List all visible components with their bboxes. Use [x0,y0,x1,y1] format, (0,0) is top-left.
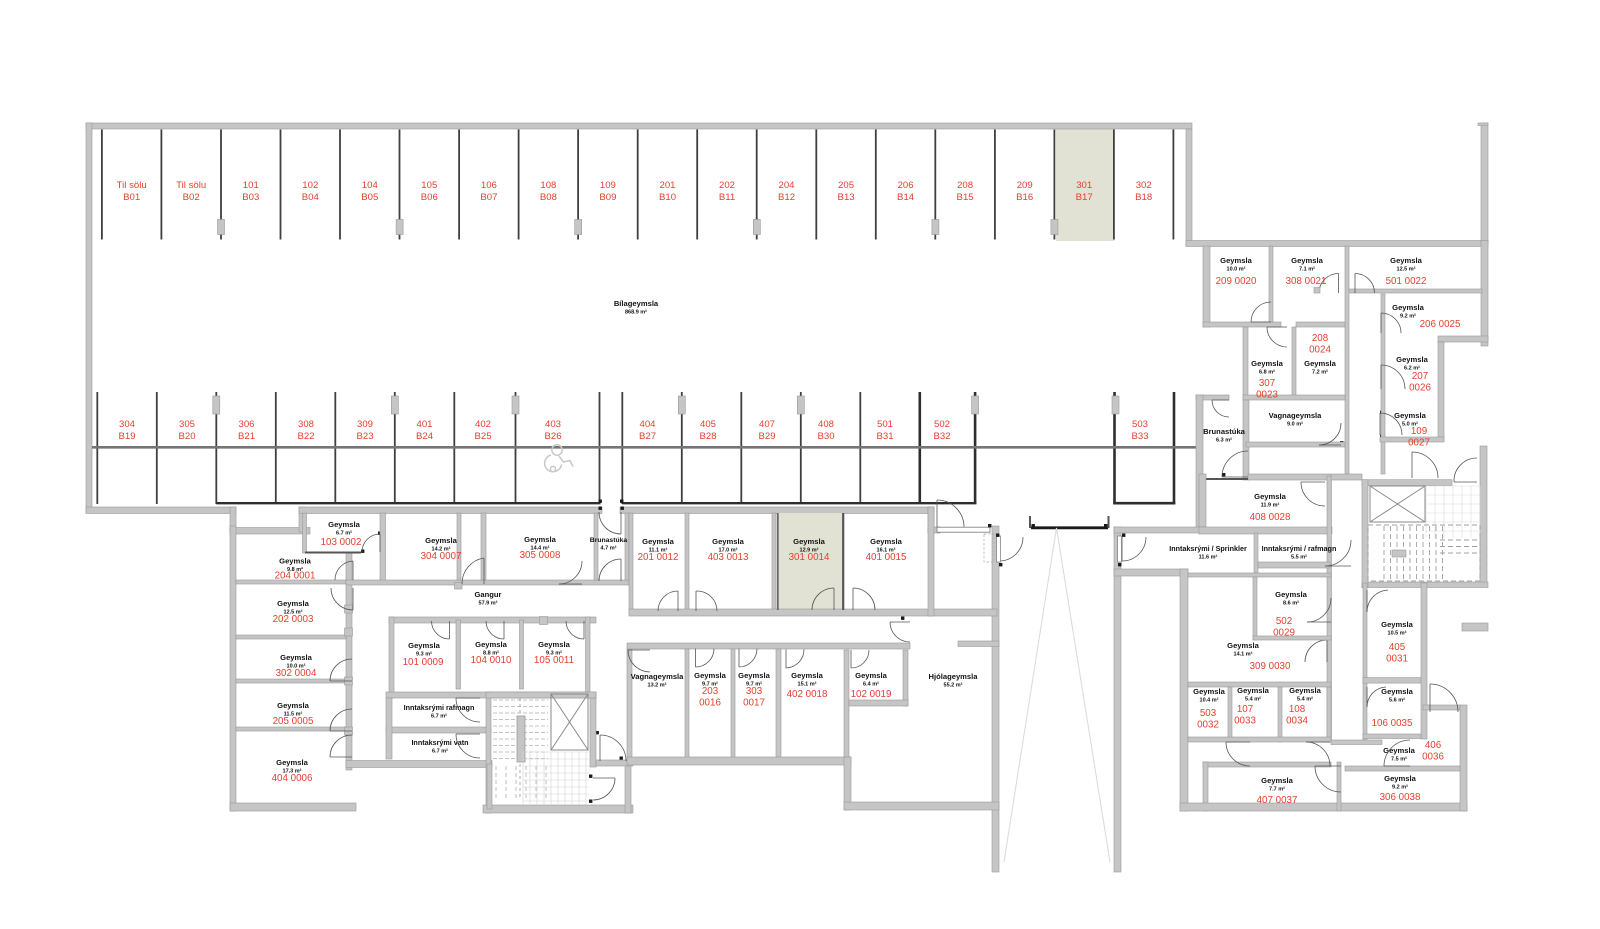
svg-text:306: 306 [238,419,254,430]
svg-text:14.1 m²: 14.1 m² [1234,650,1253,657]
svg-text:Til sölu: Til sölu [176,180,206,191]
svg-text:407 0037: 407 0037 [1257,795,1298,806]
svg-text:0024: 0024 [1309,345,1331,356]
svg-text:202 0003: 202 0003 [273,614,314,625]
svg-text:309: 309 [357,419,373,430]
svg-text:B14: B14 [897,192,915,203]
svg-text:B26: B26 [544,431,561,442]
svg-text:209: 209 [1017,180,1033,191]
svg-text:Geymsla: Geymsla [1304,359,1336,368]
svg-text:B17: B17 [1076,192,1093,203]
svg-text:Geymsla: Geymsla [280,653,312,662]
svg-text:405: 405 [700,419,716,430]
svg-text:201 0012: 201 0012 [638,552,679,563]
svg-text:502: 502 [1276,616,1292,627]
svg-text:9.0 m²: 9.0 m² [1287,420,1303,427]
svg-text:B06: B06 [421,192,438,203]
svg-text:7.1 m²: 7.1 m² [1299,265,1315,272]
svg-text:7.7 m²: 7.7 m² [1269,785,1285,792]
svg-text:105 0011: 105 0011 [534,655,574,666]
svg-text:15.1 m²: 15.1 m² [798,680,817,687]
svg-text:B03: B03 [242,192,259,203]
svg-text:6.8 m²: 6.8 m² [1259,368,1275,375]
svg-text:B16: B16 [1016,192,1033,203]
svg-text:Geymsla: Geymsla [277,599,309,608]
svg-text:B24: B24 [416,431,434,442]
svg-text:Brunastúka: Brunastúka [590,537,628,544]
svg-text:Geymsla: Geymsla [1381,620,1413,629]
svg-text:404 0006: 404 0006 [272,773,313,784]
svg-text:302: 302 [1136,180,1152,191]
svg-text:402 0018: 402 0018 [787,689,828,700]
svg-text:0034: 0034 [1286,716,1308,727]
svg-text:304 0007: 304 0007 [421,551,462,562]
svg-text:Geymsla: Geymsla [279,557,311,566]
svg-text:6.7 m²: 6.7 m² [431,712,447,719]
svg-text:13.2 m²: 13.2 m² [648,681,667,688]
svg-text:Geymsla: Geymsla [1227,641,1259,650]
svg-text:109: 109 [600,180,616,191]
svg-text:B13: B13 [838,192,855,203]
svg-text:305: 305 [179,419,195,430]
svg-text:Geymsla: Geymsla [1261,776,1293,785]
svg-text:Geymsla: Geymsla [1381,687,1413,696]
svg-text:5.5 m²: 5.5 m² [1291,553,1307,560]
svg-text:6.3 m²: 6.3 m² [1216,436,1232,443]
svg-text:Geymsla: Geymsla [1251,359,1283,368]
svg-text:108: 108 [540,180,556,191]
svg-text:B21: B21 [238,431,255,442]
svg-text:B11: B11 [719,192,735,203]
svg-text:B10: B10 [659,192,676,203]
svg-text:Geymsla: Geymsla [642,537,674,546]
svg-text:108: 108 [1289,704,1306,715]
svg-text:5.4 m²: 5.4 m² [1297,695,1313,702]
svg-text:0023: 0023 [1256,390,1278,401]
svg-text:Geymsla: Geymsla [1254,492,1286,501]
svg-text:B20: B20 [178,431,195,442]
svg-text:6.7 m²: 6.7 m² [432,747,448,754]
svg-text:B01: B01 [123,192,140,203]
svg-text:204: 204 [778,180,795,191]
svg-text:Geymsla: Geymsla [712,537,744,546]
svg-text:101 0009: 101 0009 [403,657,444,668]
svg-text:Geymsla: Geymsla [694,671,726,680]
svg-text:306 0038: 306 0038 [1380,792,1421,803]
svg-text:208: 208 [957,180,973,191]
svg-text:Hjólageymsla: Hjólageymsla [929,672,979,681]
svg-text:Geymsla: Geymsla [1193,687,1225,696]
svg-text:Geymsla: Geymsla [1383,746,1415,755]
svg-text:201: 201 [659,180,675,191]
svg-text:10.5 m²: 10.5 m² [1388,629,1407,636]
svg-text:0016: 0016 [699,698,721,709]
svg-text:B33: B33 [1131,431,1148,442]
svg-text:B31: B31 [876,431,893,442]
svg-text:Gangur: Gangur [474,590,501,599]
svg-text:Vagnageymsla: Vagnageymsla [631,672,685,681]
svg-text:7.2 m²: 7.2 m² [1312,368,1328,375]
svg-text:101: 101 [243,180,259,191]
svg-text:5.4 m²: 5.4 m² [1245,695,1261,702]
svg-text:Inntaksrými / rafmagn: Inntaksrými / rafmagn [1262,544,1337,553]
svg-text:109: 109 [1411,426,1427,437]
svg-text:406: 406 [1425,740,1442,751]
svg-text:0036: 0036 [1422,752,1444,763]
svg-text:Geymsla: Geymsla [1289,686,1321,695]
svg-text:Geymsla: Geymsla [276,758,308,767]
svg-text:104: 104 [362,180,379,191]
svg-text:Brunastúka: Brunastúka [1203,427,1246,436]
svg-text:Geymsla: Geymsla [791,671,823,680]
svg-text:103 0002: 103 0002 [321,537,362,548]
svg-text:404: 404 [639,419,656,430]
svg-text:Geymsla: Geymsla [1392,303,1424,312]
svg-text:10.0 m²: 10.0 m² [1227,265,1246,272]
svg-text:205 0005: 205 0005 [273,716,314,727]
svg-text:104 0010: 104 0010 [471,655,512,666]
svg-text:12.5 m²: 12.5 m² [1397,265,1416,272]
svg-text:407: 407 [759,419,775,430]
svg-text:405: 405 [1389,642,1406,653]
svg-text:Geymsla: Geymsla [524,535,556,544]
svg-text:206 0025: 206 0025 [1420,319,1461,330]
svg-text:B05: B05 [361,192,378,203]
svg-text:Geymsla: Geymsla [475,640,507,649]
svg-text:Inntaksrými / Sprinkler: Inntaksrými / Sprinkler [1169,544,1247,553]
svg-text:0032: 0032 [1197,720,1219,731]
svg-text:B15: B15 [957,192,974,203]
svg-text:Geymsla: Geymsla [1237,686,1269,695]
svg-text:102 0019: 102 0019 [851,689,892,700]
svg-text:B29: B29 [758,431,775,442]
svg-text:107: 107 [1237,704,1253,715]
svg-text:7.5 m²: 7.5 m² [1391,755,1407,762]
svg-text:203: 203 [702,686,719,697]
svg-text:11.9 m²: 11.9 m² [1261,501,1280,508]
svg-text:0027: 0027 [1408,438,1430,449]
svg-text:Inntaksrými rafmagn: Inntaksrými rafmagn [404,703,475,712]
svg-text:106: 106 [481,180,497,191]
svg-text:Geymsla: Geymsla [408,641,440,650]
svg-text:B02: B02 [183,192,200,203]
svg-text:Geymsla: Geymsla [538,640,570,649]
svg-text:Geymsla: Geymsla [1275,590,1307,599]
svg-text:408: 408 [818,419,834,430]
svg-text:102: 102 [302,180,318,191]
svg-text:B27: B27 [639,431,656,442]
svg-text:303: 303 [746,686,763,697]
svg-text:B23: B23 [356,431,373,442]
svg-text:204 0001: 204 0001 [275,571,316,582]
svg-text:208: 208 [1312,333,1329,344]
svg-text:5.6 m²: 5.6 m² [1389,696,1405,703]
svg-text:B09: B09 [599,192,616,203]
svg-text:Geymsla: Geymsla [793,537,825,546]
svg-text:401 0015: 401 0015 [866,552,907,563]
svg-text:209 0020: 209 0020 [1216,276,1257,287]
svg-text:8.6 m²: 8.6 m² [1283,599,1299,606]
svg-text:11.6 m²: 11.6 m² [1199,553,1218,560]
svg-text:B12: B12 [778,192,795,203]
svg-text:Geymsla: Geymsla [277,701,309,710]
svg-text:Bílageymsla: Bílageymsla [614,299,659,308]
svg-text:Geymsla: Geymsla [1390,256,1422,265]
svg-text:307: 307 [1259,378,1275,389]
svg-text:403: 403 [545,419,561,430]
svg-text:B28: B28 [699,431,716,442]
svg-text:408 0028: 408 0028 [1250,512,1291,523]
svg-text:Vagnageymsla: Vagnageymsla [1269,411,1323,420]
svg-text:Geymsla: Geymsla [425,536,457,545]
svg-text:57.9 m²: 57.9 m² [479,599,498,606]
svg-text:868.9 m²: 868.9 m² [625,308,647,315]
svg-text:402: 402 [475,419,491,430]
svg-text:Geymsla: Geymsla [328,520,360,529]
svg-text:Geymsla: Geymsla [1220,256,1252,265]
svg-text:501: 501 [877,419,893,430]
svg-text:503: 503 [1132,419,1148,430]
svg-text:501 0022: 501 0022 [1386,276,1427,287]
svg-text:Til sölu: Til sölu [117,180,147,191]
svg-text:Geymsla: Geymsla [870,537,902,546]
svg-text:Geymsla: Geymsla [1396,355,1428,364]
svg-text:Geymsla: Geymsla [855,671,887,680]
svg-text:9.2 m²: 9.2 m² [1400,312,1416,319]
svg-text:502: 502 [934,419,950,430]
svg-text:B08: B08 [540,192,557,203]
svg-text:301 0014: 301 0014 [789,552,830,563]
svg-text:309 0030: 309 0030 [1250,661,1291,672]
svg-text:403 0013: 403 0013 [708,552,749,563]
svg-text:202: 202 [719,180,735,191]
svg-text:401: 401 [416,419,432,430]
svg-text:B30: B30 [817,431,834,442]
svg-text:10.4 m²: 10.4 m² [1200,696,1219,703]
svg-text:6.4 m²: 6.4 m² [863,680,879,687]
svg-text:0033: 0033 [1234,716,1256,727]
svg-text:Inntaksrými vatn: Inntaksrými vatn [411,738,468,747]
svg-text:302 0004: 302 0004 [276,668,317,679]
svg-text:308: 308 [298,419,314,430]
svg-text:105: 105 [421,180,437,191]
svg-text:304: 304 [119,419,136,430]
svg-text:0026: 0026 [1409,383,1431,394]
svg-text:B07: B07 [480,192,497,203]
svg-text:503: 503 [1200,708,1217,719]
svg-text:305 0008: 305 0008 [520,550,561,561]
svg-text:205: 205 [838,180,854,191]
svg-text:Geymsla: Geymsla [1384,774,1416,783]
svg-text:Geymsla: Geymsla [1291,256,1323,265]
svg-text:0029: 0029 [1273,628,1295,639]
svg-text:B18: B18 [1135,192,1152,203]
svg-text:206: 206 [898,180,914,191]
svg-text:B19: B19 [118,431,135,442]
svg-text:6.7 m²: 6.7 m² [336,529,352,536]
svg-text:55.2 m²: 55.2 m² [944,681,963,688]
svg-text:0031: 0031 [1386,654,1408,665]
svg-text:106 0035: 106 0035 [1372,718,1413,729]
svg-text:B22: B22 [297,431,314,442]
svg-text:207: 207 [1412,371,1428,382]
svg-text:0017: 0017 [743,698,765,709]
svg-text:301: 301 [1076,180,1092,191]
svg-text:B04: B04 [302,192,320,203]
svg-text:B25: B25 [474,431,491,442]
svg-text:Geymsla: Geymsla [1394,411,1426,420]
svg-text:9.2 m²: 9.2 m² [1392,783,1408,790]
svg-text:4.7 m²: 4.7 m² [601,544,617,551]
svg-text:Geymsla: Geymsla [738,671,770,680]
svg-text:B32: B32 [933,431,950,442]
